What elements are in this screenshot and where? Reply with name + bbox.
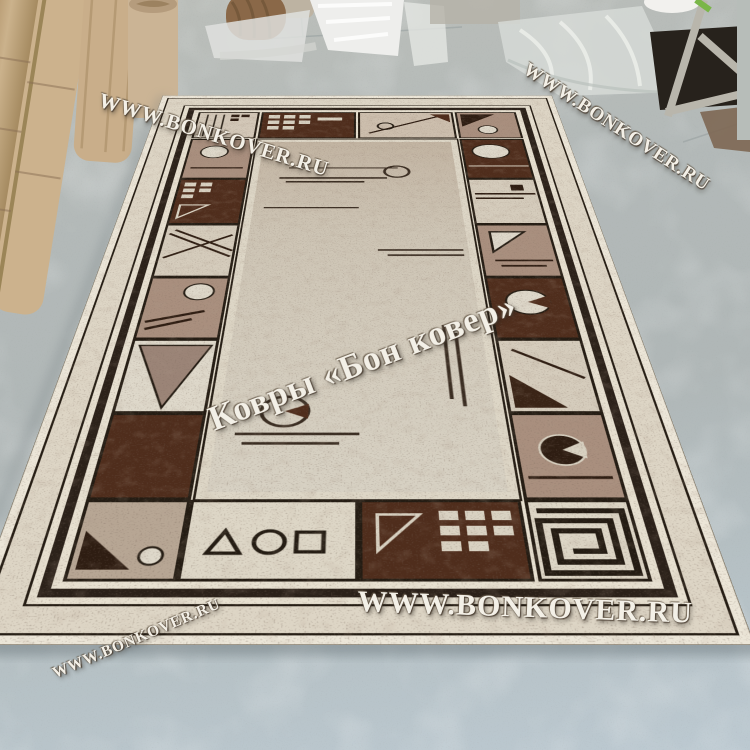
photo-scene: WWW.BONKOVER.RU WWW.BONKOVER.RU Ковры «Б… (0, 0, 750, 750)
